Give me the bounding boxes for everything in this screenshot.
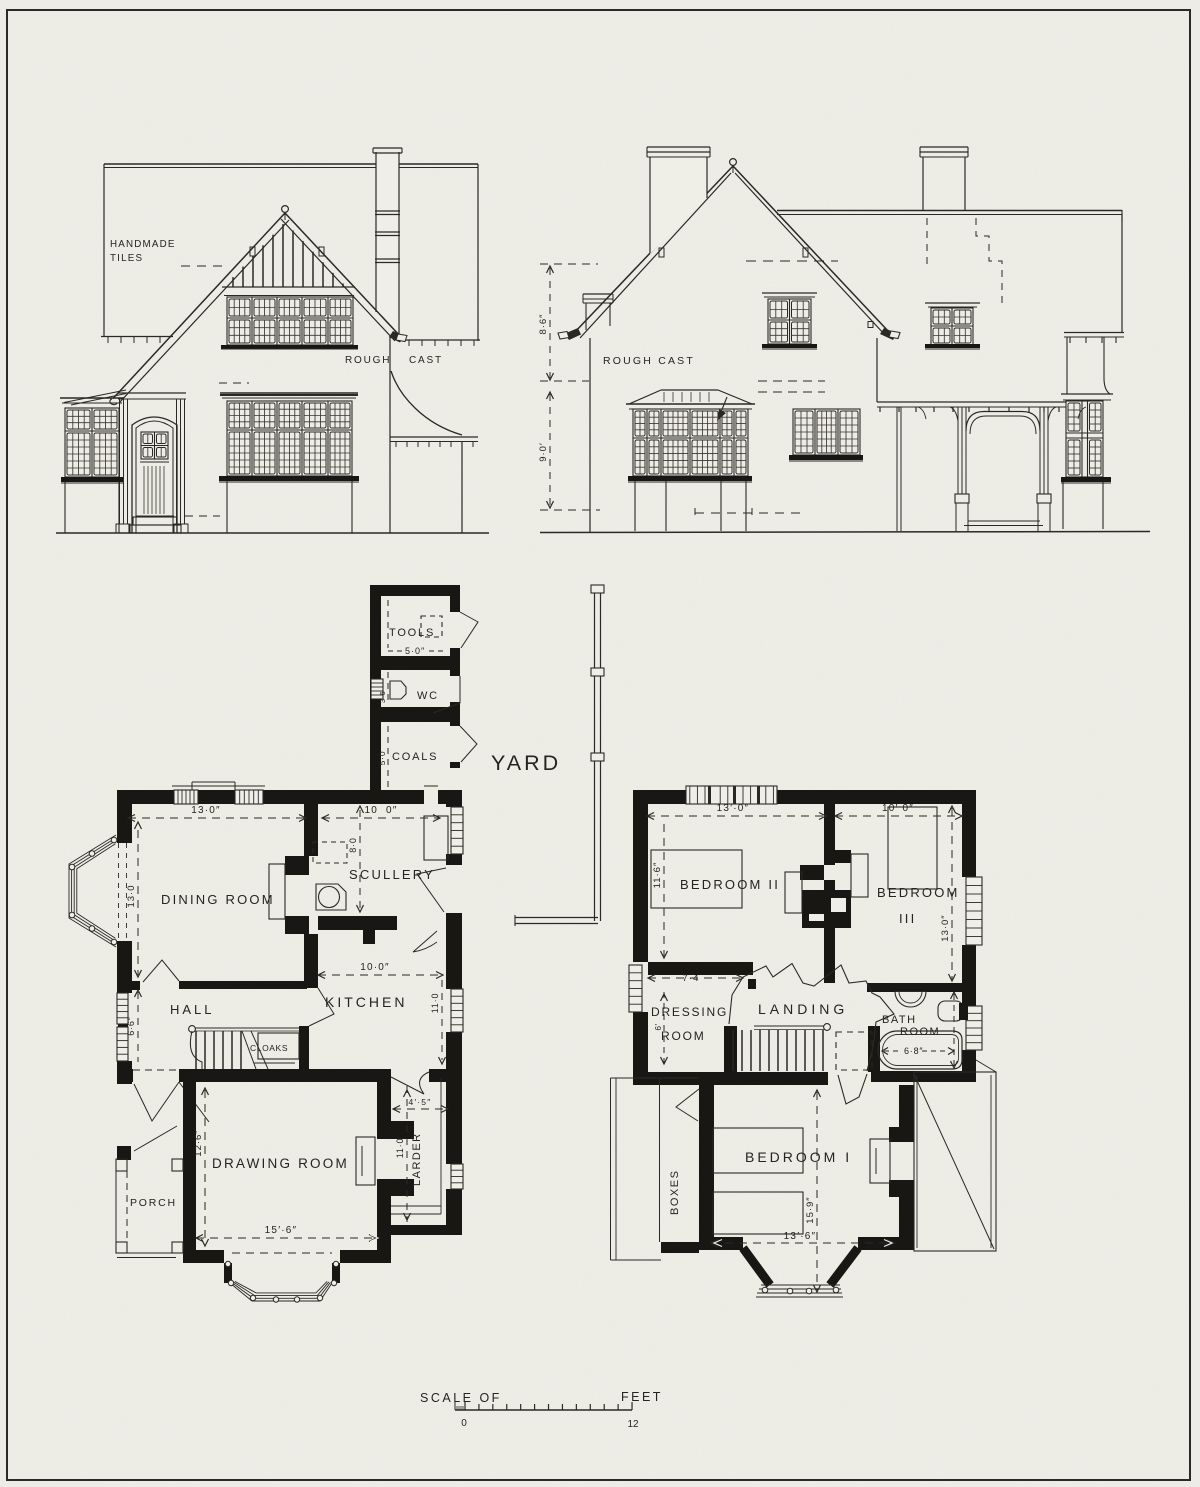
svg-text:3·6: 3·6: [378, 691, 387, 703]
svg-text:15′·6″: 15′·6″: [265, 1225, 298, 1236]
svg-text:CAST: CAST: [409, 355, 443, 366]
svg-text:6·6″: 6·6″: [126, 1016, 136, 1035]
svg-text:8·0: 8·0: [348, 837, 358, 852]
svg-text:III: III: [899, 911, 916, 926]
svg-text:SCALE OF: SCALE OF: [420, 1391, 502, 1405]
svg-text:15·9″: 15·9″: [805, 1196, 816, 1223]
svg-text:ROOM: ROOM: [900, 1026, 940, 1038]
svg-text:YARD: YARD: [491, 751, 561, 775]
svg-text:13′·0″: 13′·0″: [717, 803, 750, 814]
svg-text:8·6″: 8·6″: [538, 313, 549, 334]
svg-text:10·0″: 10·0″: [360, 962, 390, 973]
svg-text:DRAWING ROOM: DRAWING ROOM: [212, 1156, 349, 1171]
svg-text:6·8″: 6·8″: [904, 1046, 923, 1056]
svg-text:11·0: 11·0: [430, 993, 440, 1014]
svg-text:ROOM: ROOM: [661, 1029, 706, 1043]
svg-text:13·0: 13·0: [126, 884, 137, 907]
svg-text:BATH: BATH: [882, 1014, 917, 1026]
svg-text:12: 12: [627, 1419, 639, 1430]
svg-text:DRESSING: DRESSING: [651, 1005, 728, 1019]
svg-text:LARDER: LARDER: [411, 1132, 423, 1186]
svg-text:5·0″: 5·0″: [405, 646, 425, 656]
svg-text:COALS: COALS: [392, 751, 438, 763]
svg-text:LANDING: LANDING: [758, 1001, 848, 1017]
svg-text:12·6″: 12·6″: [193, 1129, 204, 1156]
svg-text:11·6″: 11·6″: [652, 862, 663, 889]
svg-text:SCULLERY: SCULLERY: [349, 867, 435, 882]
svg-text:BEDROOM II: BEDROOM II: [680, 877, 780, 892]
svg-text:10 0″: 10 0″: [365, 805, 398, 816]
svg-text:11·0: 11·0: [395, 1138, 405, 1159]
svg-text:CLOAKS: CLOAKS: [250, 1043, 288, 1053]
svg-text:9·0′: 9·0′: [538, 442, 549, 462]
svg-text:7·4: 7·4: [682, 973, 699, 984]
svg-text:ROUGH CAST: ROUGH CAST: [603, 355, 695, 367]
svg-text:PORCH: PORCH: [130, 1197, 177, 1209]
svg-text:BEDROOM I: BEDROOM I: [745, 1149, 852, 1165]
svg-text:ROUGH: ROUGH: [345, 355, 391, 366]
svg-text:BEDROOM: BEDROOM: [877, 885, 960, 900]
svg-text:KITCHEN: KITCHEN: [325, 994, 407, 1010]
svg-text:FEET: FEET: [621, 1390, 663, 1404]
svg-text:0: 0: [461, 1418, 467, 1429]
svg-text:TILES: TILES: [110, 253, 143, 264]
svg-text:13·0″: 13·0″: [191, 805, 221, 816]
svg-text:13·0″: 13·0″: [940, 914, 951, 941]
svg-text:13′·6″: 13′·6″: [784, 1231, 817, 1242]
svg-text:DINING ROOM: DINING ROOM: [161, 892, 275, 907]
svg-text:WC: WC: [417, 690, 439, 702]
svg-text:HANDMADE: HANDMADE: [110, 239, 176, 250]
svg-text:BOXES: BOXES: [669, 1170, 681, 1215]
svg-text:4′·5″: 4′·5″: [409, 1097, 432, 1107]
svg-text:5·0: 5·0: [377, 751, 387, 766]
svg-text:HALL: HALL: [170, 1002, 215, 1017]
svg-text:10′ 0″: 10′ 0″: [882, 803, 914, 814]
